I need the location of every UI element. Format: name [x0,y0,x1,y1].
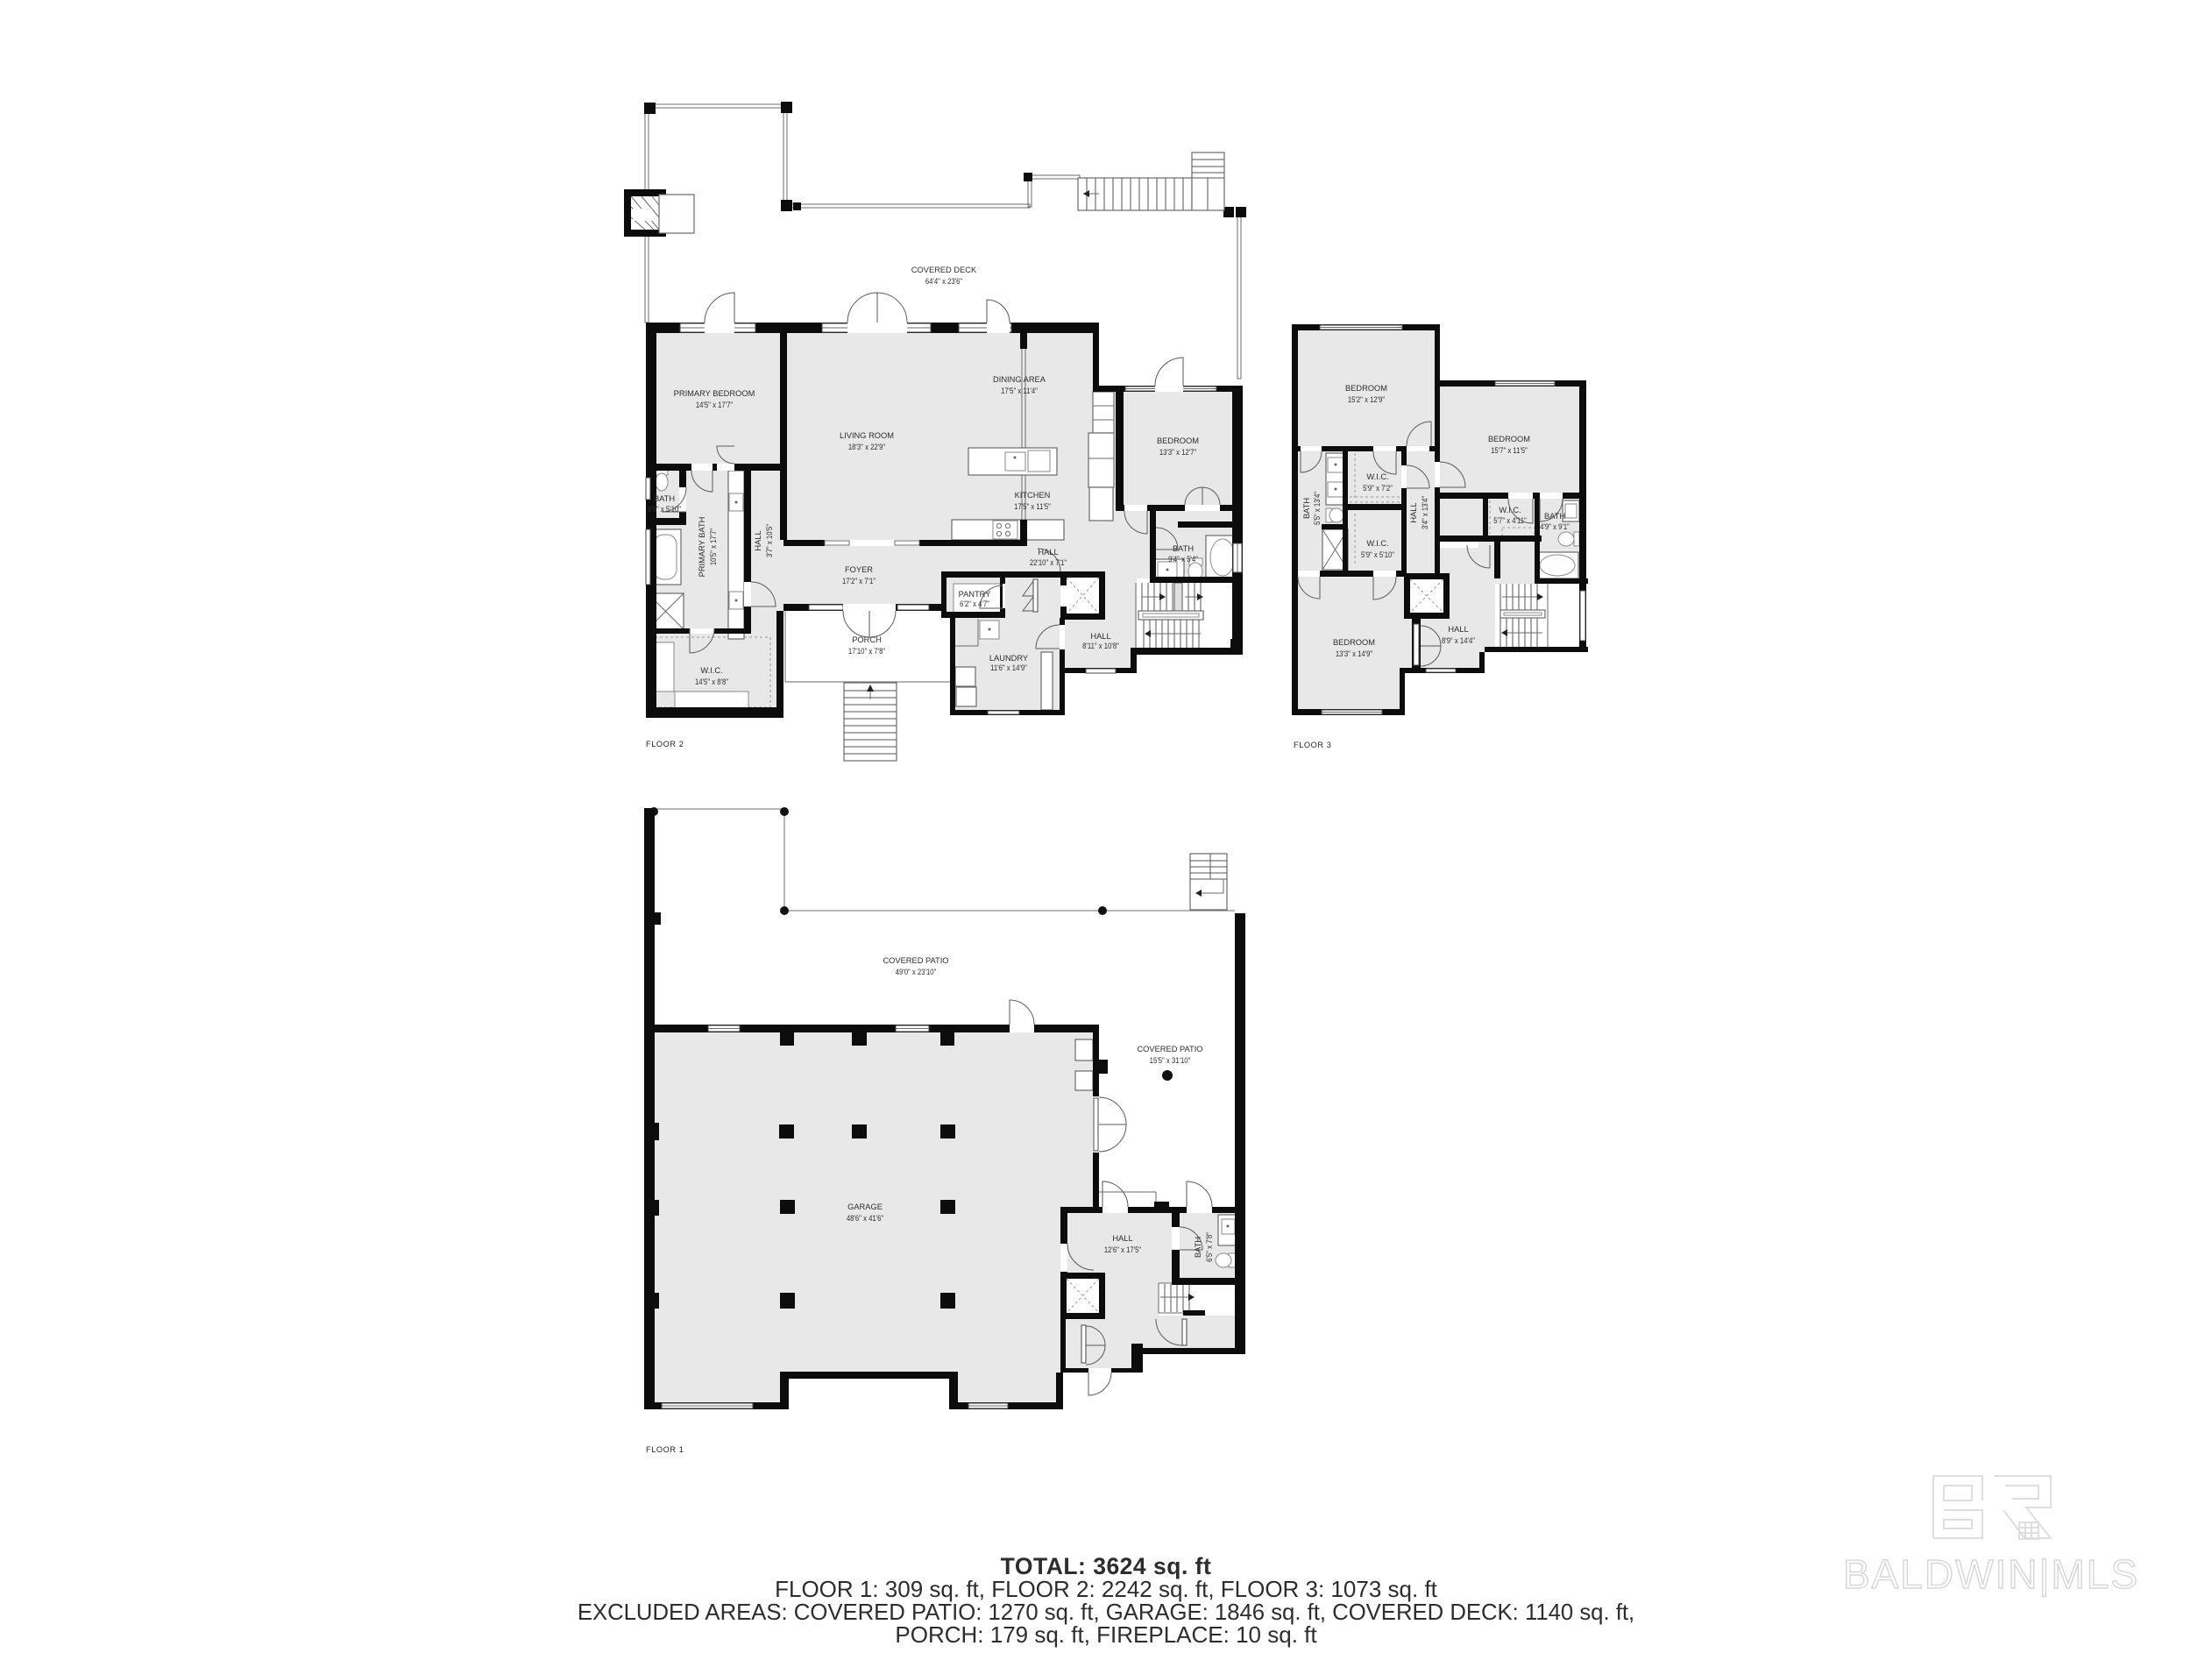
svg-text:5'9" x 5'10": 5'9" x 5'10" [1361,550,1394,559]
svg-text:5'9" x 7'2": 5'9" x 7'2" [1363,483,1393,493]
svg-text:8'9" x 14'4": 8'9" x 14'4" [1442,635,1475,645]
svg-text:FLOOR 1: FLOOR 1 [646,1445,684,1454]
svg-text:5'7" x 4'11": 5'7" x 4'11" [1493,515,1527,525]
svg-text:6'5" x 7'8": 6'5" x 7'8" [1204,1232,1214,1262]
svg-text:12'6" x 17'5": 12'6" x 17'5" [1104,1245,1141,1254]
svg-text:5'5" x 13'4": 5'5" x 13'4" [1312,492,1322,525]
svg-text:13'3" x 12'7": 13'3" x 12'7" [1159,447,1196,457]
svg-text:17'10" x 7'8": 17'10" x 7'8" [848,646,885,656]
svg-text:3'4" x 13'4": 3'4" x 13'4" [1420,496,1429,529]
svg-text:BATH: BATH [1194,1237,1202,1258]
svg-text:8'8" x 5'10": 8'8" x 5'10" [648,504,681,514]
svg-text:14'5" x 17'7": 14'5" x 17'7" [696,400,733,409]
svg-text:48'6" x 41'6": 48'6" x 41'6" [847,1213,883,1223]
svg-text:3'7" x 10'5": 3'7" x 10'5" [764,524,774,557]
svg-text:COVERED PATIO: COVERED PATIO [883,956,948,965]
svg-text:HALL: HALL [1090,632,1110,641]
svg-text:LIVING ROOM: LIVING ROOM [840,431,894,440]
svg-text:BEDROOM: BEDROOM [1345,384,1387,393]
svg-text:BEDROOM: BEDROOM [1157,436,1199,445]
svg-text:22'10" x 7'1": 22'10" x 7'1" [1030,557,1067,567]
svg-text:HALL: HALL [1409,502,1418,522]
svg-text:8'11" x 10'8": 8'11" x 10'8" [1082,641,1119,650]
svg-text:W.I.C.: W.I.C. [1366,472,1388,481]
svg-text:GARAGE: GARAGE [847,1202,883,1211]
svg-text:6'2" x 4'7": 6'2" x 4'7" [960,599,989,608]
svg-text:FOYER: FOYER [845,565,873,574]
svg-text:14'5" x 8'8": 14'5" x 8'8" [695,677,728,686]
svg-text:HALL: HALL [1448,625,1468,634]
svg-text:BATH: BATH [1173,544,1194,553]
svg-text:W.I.C.: W.I.C. [700,666,722,675]
svg-text:W.I.C.: W.I.C. [1499,506,1521,514]
svg-text:PRIMARY BATH: PRIMARY BATH [698,517,706,578]
svg-text:9'4" x 5'4": 9'4" x 5'4" [1168,554,1198,564]
svg-text:PRIMARY BEDROOM: PRIMARY BEDROOM [674,389,755,398]
svg-text:17'5" x 11'4": 17'5" x 11'4" [1001,386,1038,395]
svg-text:HALL: HALL [1038,548,1058,557]
svg-text:FLOOR 3: FLOOR 3 [1294,741,1332,749]
svg-text:PANTRY: PANTRY [959,590,991,599]
svg-text:4'9" x 9'1": 4'9" x 9'1" [1540,521,1570,531]
svg-text:17'5" x 11'5": 17'5" x 11'5" [1014,501,1051,511]
svg-text:PORCH: 179 sq. ft, FIREPLACE:: PORCH: 179 sq. ft, FIREPLACE: 10 sq. ft [895,1621,1317,1648]
svg-text:BEDROOM: BEDROOM [1488,435,1530,443]
svg-text:15'7" x 11'5": 15'7" x 11'5" [1491,445,1528,455]
svg-text:11'6" x 14'9": 11'6" x 14'9" [990,663,1027,672]
svg-text:BEDROOM: BEDROOM [1333,638,1375,647]
svg-text:PORCH: PORCH [852,635,882,644]
svg-text:LAUNDRY: LAUNDRY [989,654,1028,663]
svg-text:15'2" x 12'9": 15'2" x 12'9" [1348,394,1385,404]
svg-text:COVERED DECK: COVERED DECK [911,266,977,274]
svg-text:17'2" x 7'1": 17'2" x 7'1" [842,576,876,585]
svg-text:49'0" x 23'10": 49'0" x 23'10" [896,967,937,976]
svg-text:64'4" x 23'6": 64'4" x 23'6" [925,276,962,286]
svg-text:BATH: BATH [1544,512,1565,521]
svg-text:18'3" x 22'9": 18'3" x 22'9" [848,442,885,451]
svg-text:DINING AREA: DINING AREA [993,375,1046,384]
svg-text:15'5" x 31'10": 15'5" x 31'10" [1150,1055,1191,1065]
svg-text:FLOOR 1: 309 sq. ft, FLOOR 2:: FLOOR 1: 309 sq. ft, FLOOR 2: 2242 sq. f… [775,1576,1438,1602]
svg-text:KITCHEN: KITCHEN [1015,491,1051,500]
svg-text:HALL: HALL [754,530,762,550]
svg-text:FLOOR 2: FLOOR 2 [646,740,684,748]
svg-text:COVERED PATIO: COVERED PATIO [1137,1045,1202,1053]
svg-text:BATH: BATH [654,494,675,503]
svg-text:HALL: HALL [1112,1234,1132,1243]
svg-text:W.I.C.: W.I.C. [1366,539,1388,548]
svg-text:13'3" x 14'9": 13'3" x 14'9" [1336,649,1372,658]
svg-text:BATH: BATH [1302,498,1311,519]
svg-text:10'5" x 17'7": 10'5" x 17'7" [708,529,718,565]
svg-text:BALDWIN|MLS: BALDWIN|MLS [1843,1551,2139,1597]
